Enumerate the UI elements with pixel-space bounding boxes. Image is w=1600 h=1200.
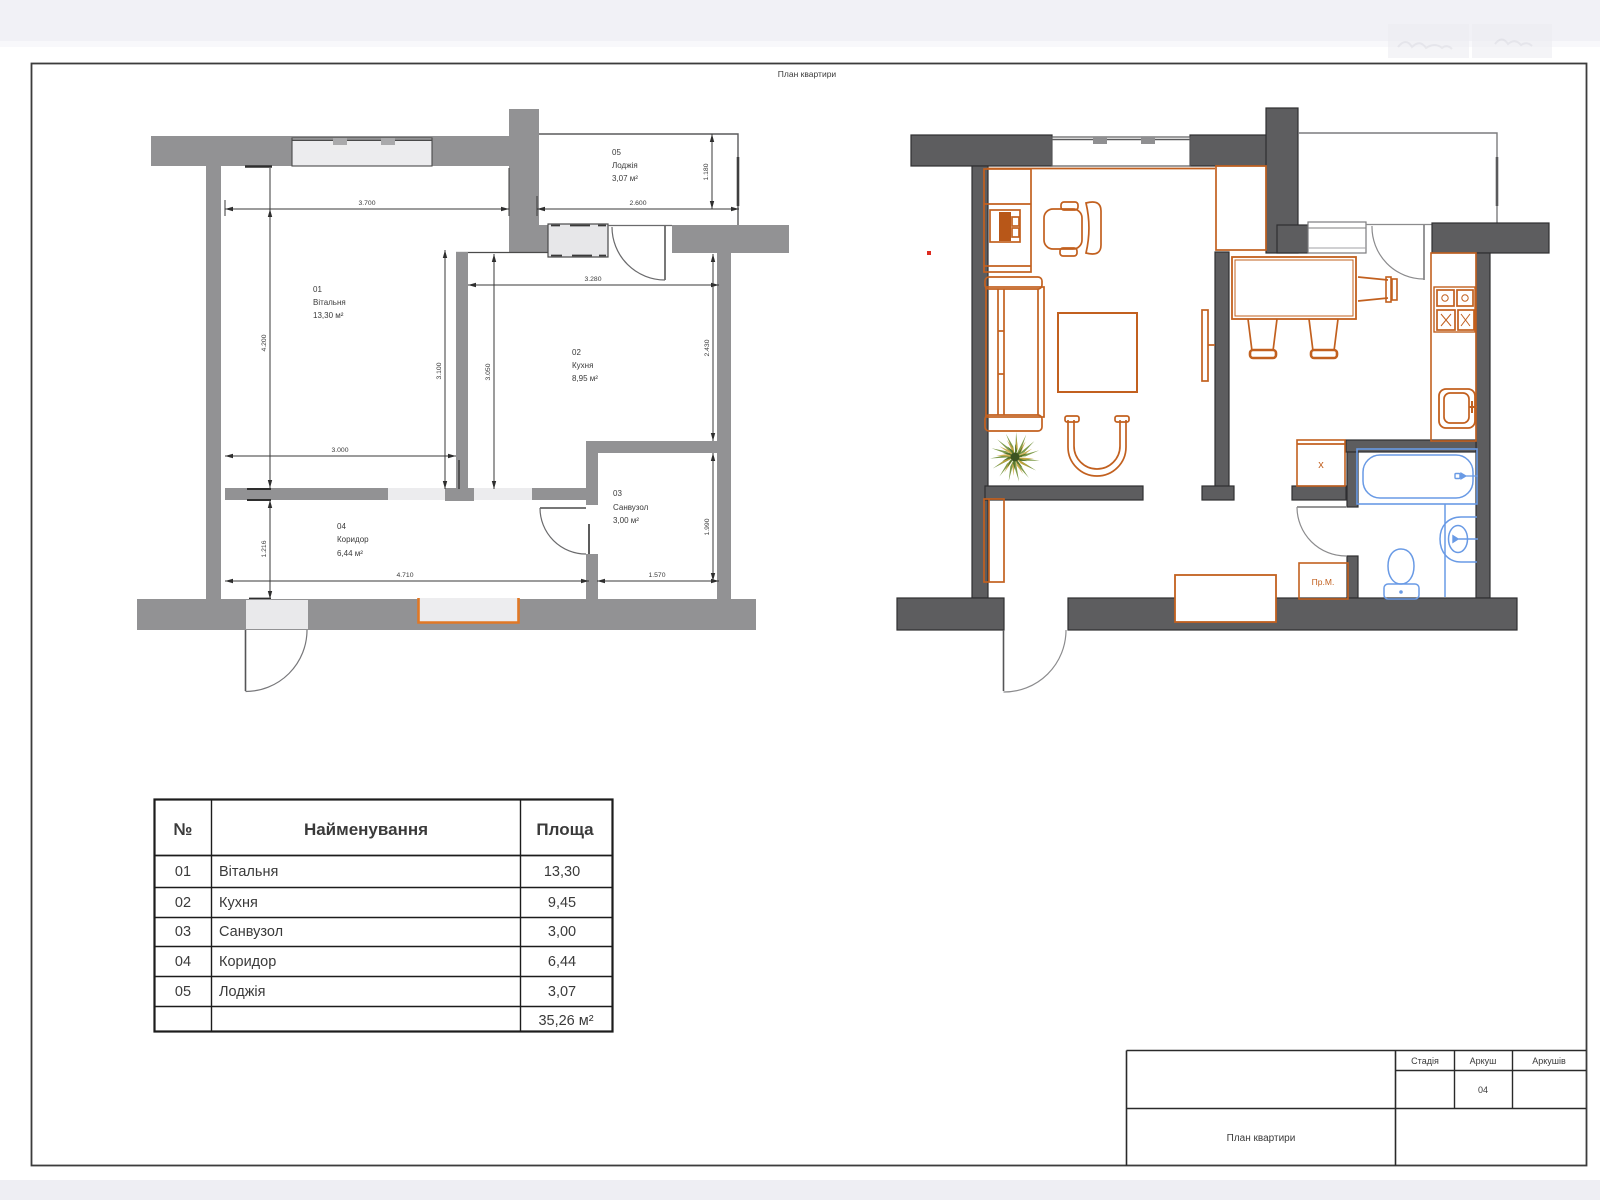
svg-text:Санвузол: Санвузол [219,924,283,940]
svg-text:04: 04 [1478,1085,1488,1095]
svg-text:01: 01 [313,285,322,294]
svg-text:02: 02 [175,895,191,911]
svg-text:Вітальня: Вітальня [219,864,278,880]
svg-text:1.180: 1.180 [703,163,710,180]
svg-text:05: 05 [175,984,191,1000]
svg-text:6,44: 6,44 [548,954,576,970]
svg-text:Кухня: Кухня [572,361,593,370]
svg-text:Аркуш: Аркуш [1470,1056,1497,1066]
svg-text:04: 04 [175,954,191,970]
svg-text:4.200: 4.200 [261,334,268,351]
svg-text:3,00: 3,00 [548,924,576,940]
svg-text:2.600: 2.600 [629,200,646,207]
svg-text:05: 05 [612,148,621,157]
svg-text:№: № [174,820,193,839]
svg-text:35,26 м²: 35,26 м² [538,1013,593,1029]
svg-text:3,07: 3,07 [548,984,576,1000]
svg-text:1.990: 1.990 [704,518,711,535]
svg-text:Площа: Площа [536,820,594,839]
svg-text:Коридор: Коридор [219,954,276,970]
svg-text:Санвузол: Санвузол [613,503,649,512]
svg-text:01: 01 [175,864,191,880]
svg-text:3.700: 3.700 [358,200,375,207]
svg-text:3,07 м²: 3,07 м² [612,174,638,183]
svg-text:Аркушів: Аркушів [1532,1056,1566,1066]
svg-text:4.710: 4.710 [396,572,413,579]
svg-text:Найменування: Найменування [304,820,428,839]
svg-text:Коридор: Коридор [337,535,369,544]
svg-text:13,30 м²: 13,30 м² [313,311,344,320]
svg-text:3.000: 3.000 [331,447,348,454]
svg-text:03: 03 [175,924,191,940]
svg-text:02: 02 [572,348,581,357]
svg-text:План квартири: План квартири [778,69,837,79]
svg-text:Лоджія: Лоджія [219,984,266,1000]
svg-text:8,95 м²: 8,95 м² [572,374,598,383]
svg-text:1.216: 1.216 [261,540,268,557]
svg-text:2.430: 2.430 [704,339,711,356]
svg-text:План квартири: План квартири [1227,1133,1296,1144]
svg-text:Лоджія: Лоджія [612,161,638,170]
svg-text:13,30: 13,30 [544,864,580,880]
svg-text:04: 04 [337,522,346,531]
svg-text:Стадія: Стадія [1411,1056,1439,1066]
svg-text:Вітальня: Вітальня [313,298,346,307]
svg-text:Пр.М.: Пр.М. [1312,577,1335,587]
svg-text:3.100: 3.100 [436,362,443,379]
svg-text:03: 03 [613,489,622,498]
svg-text:3.050: 3.050 [485,363,492,380]
svg-text:9,45: 9,45 [548,895,576,911]
svg-text:6,44 м²: 6,44 м² [337,549,363,558]
svg-text:1.570: 1.570 [648,572,665,579]
svg-text:3.280: 3.280 [584,276,601,283]
svg-text:Кухня: Кухня [219,895,258,911]
svg-text:3,00 м²: 3,00 м² [613,516,639,525]
svg-text:х: х [1318,459,1324,471]
